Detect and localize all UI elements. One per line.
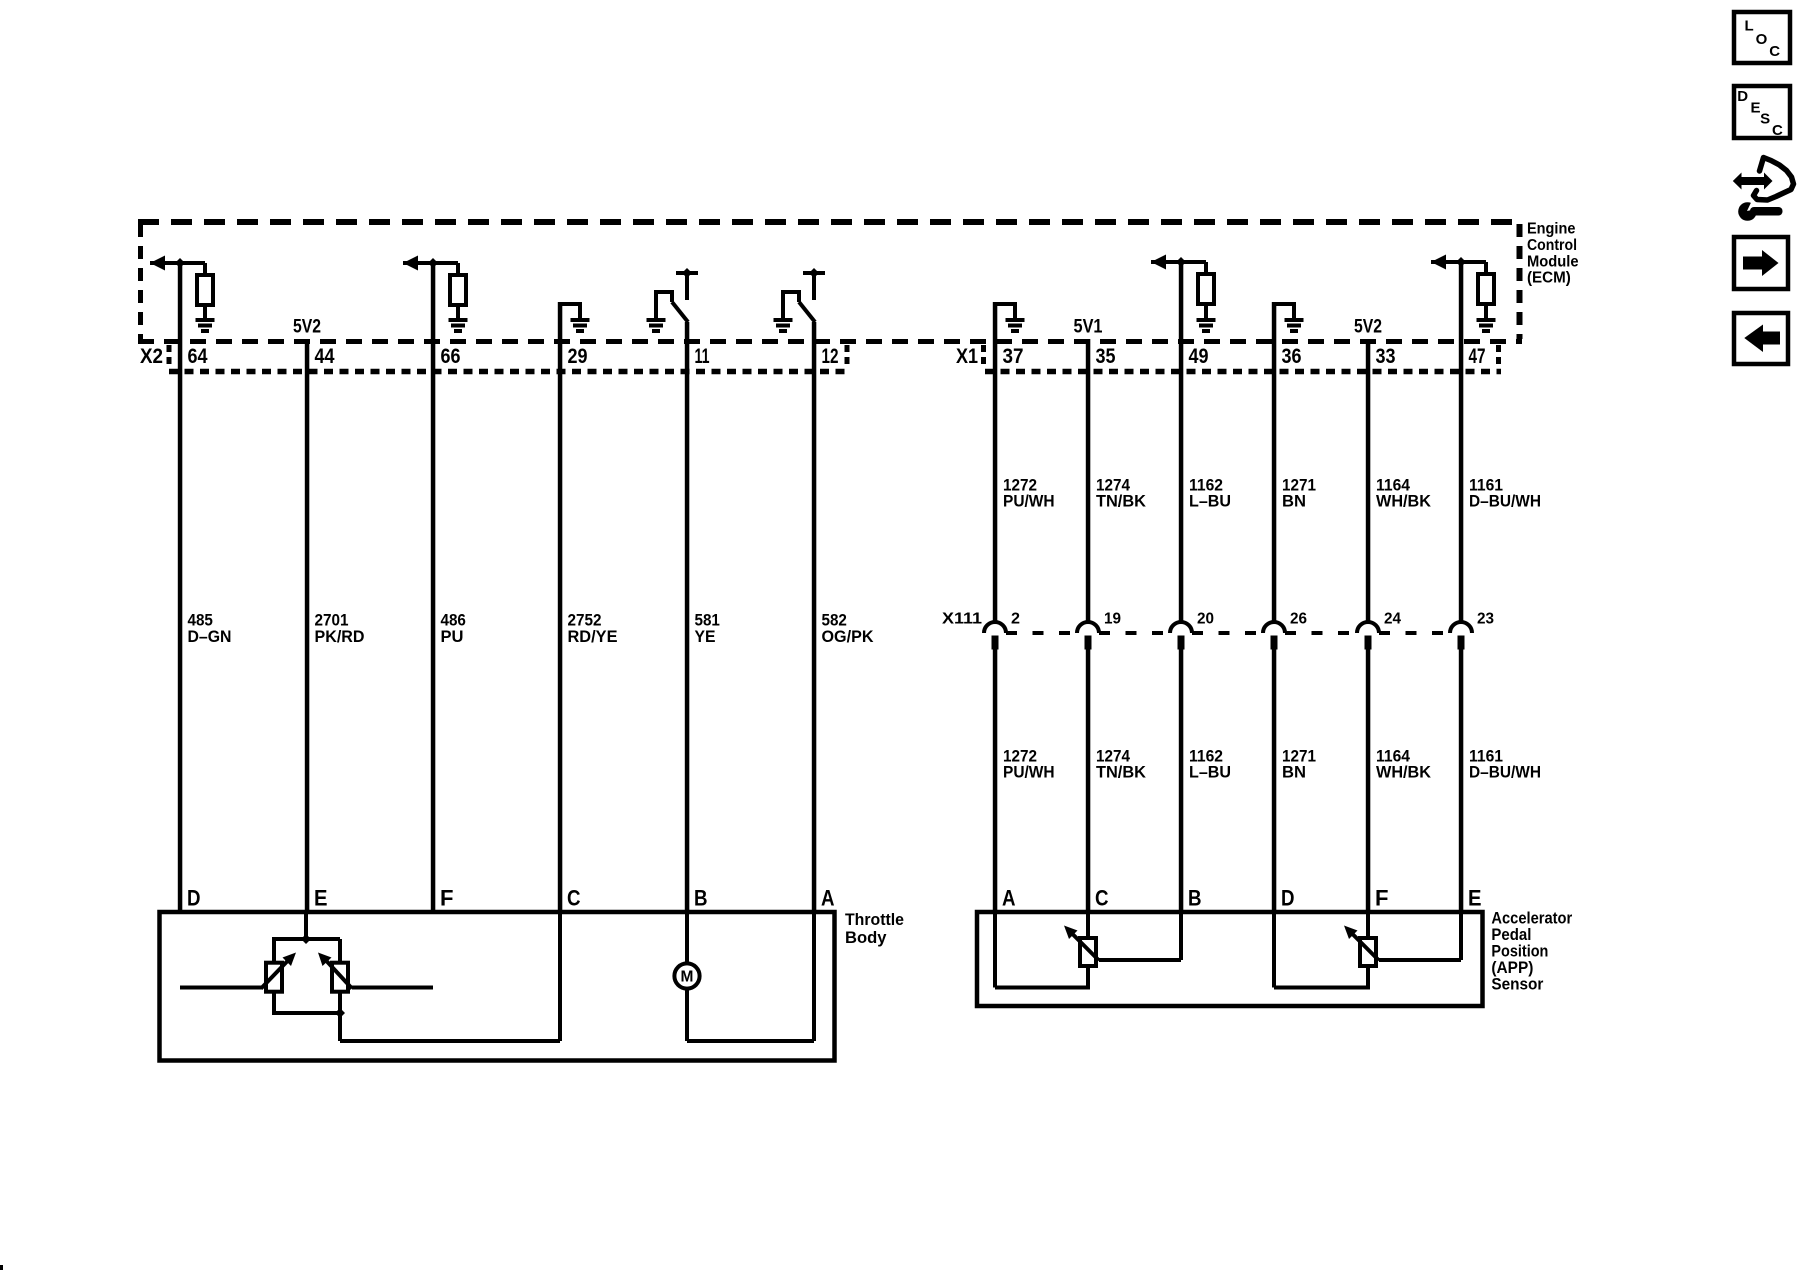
svg-text:PU: PU — [441, 627, 464, 646]
svg-text:YE: YE — [695, 627, 716, 646]
svg-text:OG/PK: OG/PK — [822, 627, 875, 646]
svg-text:D–GN: D–GN — [188, 627, 232, 646]
svg-text:S: S — [1760, 111, 1770, 128]
svg-text:WH/BK: WH/BK — [1376, 492, 1432, 511]
svg-text:5V1: 5V1 — [1074, 317, 1103, 338]
svg-text:5V2: 5V2 — [293, 317, 321, 338]
svg-text:X111: X111 — [942, 611, 982, 628]
svg-text:Throttle: Throttle — [845, 910, 904, 929]
svg-text:BN: BN — [1282, 763, 1306, 782]
svg-text:D–BU/WH: D–BU/WH — [1469, 492, 1541, 511]
svg-text:PU/WH: PU/WH — [1003, 492, 1055, 511]
svg-text:Body: Body — [845, 928, 887, 947]
svg-text:D–BU/WH: D–BU/WH — [1469, 763, 1541, 782]
svg-text:Control: Control — [1527, 237, 1577, 254]
svg-text:29: 29 — [568, 345, 588, 368]
svg-text:C: C — [1772, 122, 1783, 139]
svg-text:44: 44 — [315, 345, 335, 368]
svg-text:F: F — [440, 886, 454, 911]
svg-text:2: 2 — [1011, 611, 1020, 628]
svg-text:L–BU: L–BU — [1189, 492, 1231, 511]
svg-text:20: 20 — [1197, 611, 1214, 628]
svg-text:5V2: 5V2 — [1354, 317, 1382, 338]
svg-text:O: O — [1756, 31, 1768, 48]
svg-text:X1: X1 — [956, 345, 978, 368]
svg-text:X2: X2 — [140, 345, 163, 368]
svg-text:Module: Module — [1527, 253, 1579, 270]
svg-text:BN: BN — [1282, 492, 1306, 511]
svg-text:F: F — [1375, 886, 1389, 911]
svg-text:49: 49 — [1189, 345, 1209, 368]
svg-text:E: E — [314, 886, 328, 911]
svg-text:47: 47 — [1469, 345, 1486, 368]
svg-text:D: D — [187, 886, 201, 911]
svg-text:26: 26 — [1290, 611, 1307, 628]
svg-text:B: B — [694, 886, 708, 911]
svg-text:11: 11 — [695, 345, 710, 368]
svg-text:E: E — [1751, 99, 1761, 116]
svg-text:L: L — [1745, 18, 1754, 35]
svg-text:M: M — [681, 969, 694, 986]
svg-text:C: C — [567, 886, 581, 911]
svg-text:E: E — [1468, 886, 1482, 911]
svg-text:D: D — [1281, 886, 1295, 911]
svg-text:TN/BK: TN/BK — [1096, 492, 1147, 511]
svg-text:Sensor: Sensor — [1491, 975, 1543, 994]
svg-text:A: A — [1002, 886, 1016, 911]
svg-text:66: 66 — [441, 345, 461, 368]
svg-text:37: 37 — [1003, 345, 1024, 368]
svg-text:23: 23 — [1477, 611, 1494, 628]
svg-text:WH/BK: WH/BK — [1376, 763, 1432, 782]
svg-text:24: 24 — [1384, 611, 1401, 628]
svg-text:36: 36 — [1282, 345, 1302, 368]
svg-text:33: 33 — [1376, 345, 1396, 368]
svg-text:RD/YE: RD/YE — [568, 627, 618, 646]
svg-text:12: 12 — [822, 345, 839, 368]
svg-text:C: C — [1769, 43, 1780, 60]
svg-text:64: 64 — [188, 345, 208, 368]
svg-text:L–BU: L–BU — [1189, 763, 1231, 782]
svg-text:PK/RD: PK/RD — [315, 627, 365, 646]
svg-text:C: C — [1095, 886, 1109, 911]
svg-text:TN/BK: TN/BK — [1096, 763, 1147, 782]
svg-text:A: A — [821, 886, 835, 911]
svg-text:D: D — [1737, 88, 1748, 105]
svg-text:(ECM): (ECM) — [1527, 270, 1571, 287]
svg-text:19: 19 — [1104, 611, 1121, 628]
svg-text:B: B — [1188, 886, 1202, 911]
svg-text:35: 35 — [1096, 345, 1116, 368]
svg-text:PU/WH: PU/WH — [1003, 763, 1055, 782]
svg-text:Engine: Engine — [1527, 221, 1575, 238]
